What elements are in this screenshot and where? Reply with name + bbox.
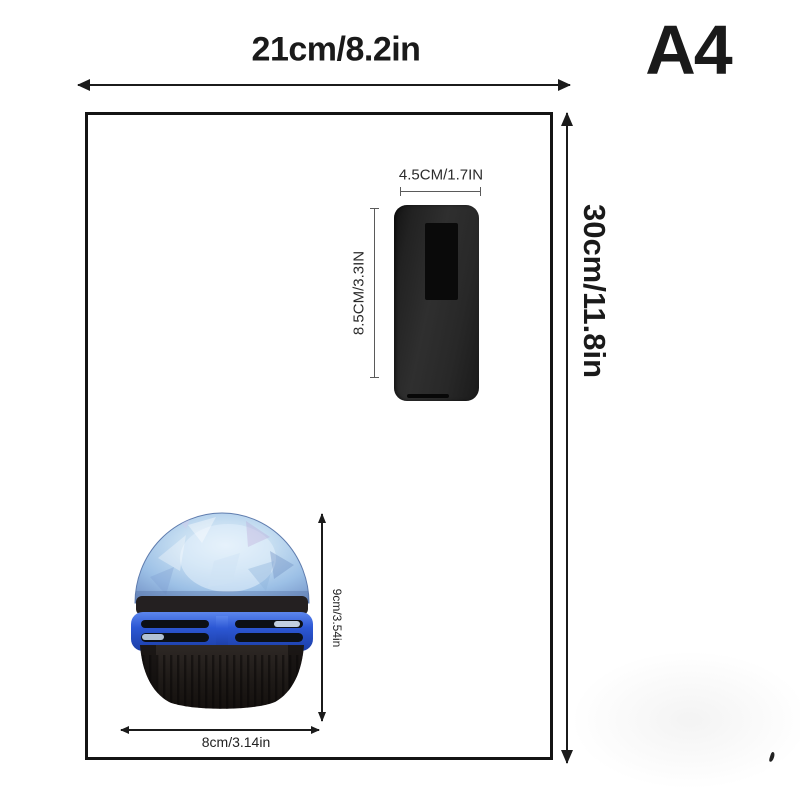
lamp-height-arrow [321, 514, 323, 721]
remote-bottom-groove [407, 394, 449, 398]
paper-height-label: 30cm/11.8in [576, 204, 612, 378]
arrow-up-icon [561, 112, 573, 126]
paper-height-arrow [566, 113, 568, 763]
arrow-right-icon [311, 726, 320, 734]
remote-width-label: 4.5CM/1.7IN [399, 167, 483, 184]
remote-height-line [374, 208, 375, 378]
photo-shadow [570, 650, 800, 790]
lamp-ribbed-base [138, 645, 308, 715]
paper-width-arrow [78, 84, 570, 86]
paper-size-label: A4 [645, 10, 730, 90]
projector-lamp [128, 503, 318, 715]
remote-button-panel [425, 223, 458, 300]
product-size-diagram: 21cm/8.2in A4 30cm/11.8in 4.5CM/1.7IN 8.… [0, 0, 800, 800]
remote-width-line [400, 191, 481, 192]
lamp-width-arrow [121, 729, 319, 731]
arrow-left-icon [77, 79, 90, 91]
remote-height-label: 8.5CM/3.3IN [351, 251, 368, 335]
lamp-height-label: 9cm/3.54in [330, 589, 344, 648]
arrow-down-icon [318, 712, 326, 722]
remote-control [394, 205, 479, 401]
arrow-up-icon [318, 513, 326, 523]
paper-width-label: 21cm/8.2in [252, 31, 421, 70]
arrow-left-icon [120, 726, 129, 734]
arrow-right-icon [558, 79, 571, 91]
lamp-width-label: 8cm/3.14in [202, 734, 270, 750]
lamp-crystal-dome [128, 509, 318, 605]
